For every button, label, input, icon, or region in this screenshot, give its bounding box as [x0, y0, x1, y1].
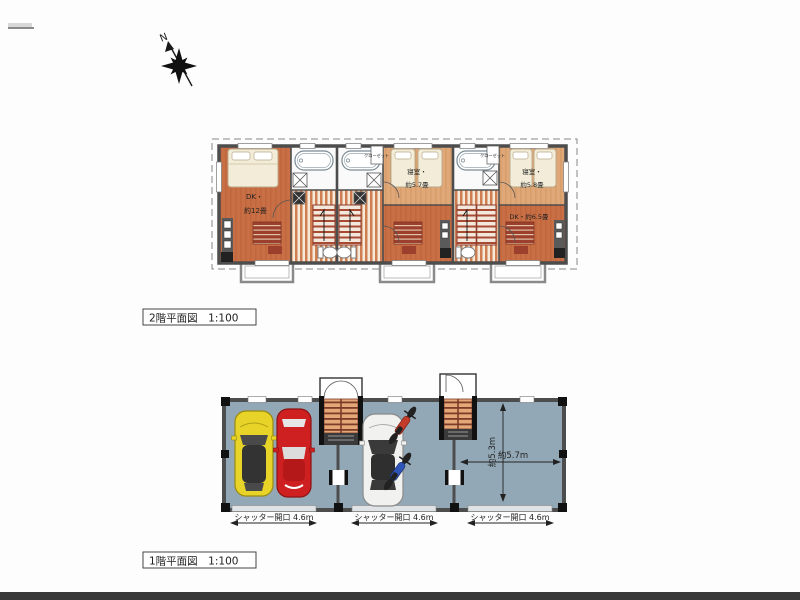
bathtub-core1	[295, 151, 333, 170]
unit3-bedroom-label: 寝室・	[522, 167, 542, 176]
stairs-core3	[457, 205, 496, 245]
floor-plan-document: N	[0, 0, 800, 600]
shutter-dim-1-label: シャッター開口 4.6m	[234, 513, 313, 522]
shutter-dim-3: シャッター開口 4.6m	[468, 513, 553, 523]
divider-door-1	[329, 470, 348, 485]
floor1-caption-text: 1階平面図 1:100	[149, 556, 238, 568]
toilet-core1	[318, 247, 337, 258]
toilet-core3	[456, 247, 475, 258]
unit1-dk-label: DK・	[246, 193, 263, 201]
shutter-dim-1: シャッター開口 4.6m	[231, 513, 316, 523]
balcony-2	[380, 263, 434, 282]
shutter-dim-2-label: シャッター開口 4.6m	[354, 513, 433, 522]
unit3-bedroom-size: 約5.8畳	[520, 180, 544, 189]
dim-width-label: 約5.7m	[498, 450, 528, 461]
floor2-plan: クローゼット クローゼット	[212, 139, 577, 282]
floor1-plan: 約5.3m 約5.7m シャッター開口 4.6m シャッター開口 4.6m シャ…	[221, 374, 567, 523]
balcony-1	[241, 263, 293, 282]
kitchen-unit2	[440, 220, 451, 258]
floor2-caption-text: 2階平面図 1:100	[149, 313, 238, 325]
unit1-dk-size: 約12畳	[244, 206, 267, 215]
unit3-dk-label: DK・約6.5畳	[509, 212, 549, 221]
floor1-caption: 1階平面図 1:100	[143, 552, 256, 568]
closet-label-unit2: クローゼット	[364, 152, 389, 159]
toilet-core2	[337, 247, 356, 258]
scan-edge-bottom	[0, 592, 800, 600]
bed-unit1	[228, 149, 278, 187]
stair-block-a	[319, 378, 363, 445]
kitchen-unit1	[221, 218, 233, 262]
balcony-3	[491, 263, 545, 282]
stair-block-b	[439, 374, 477, 440]
shutter-dim-2: シャッター開口 4.6m	[352, 513, 437, 523]
stairs-core1	[313, 205, 335, 245]
scan-artifact-top-left	[8, 23, 34, 29]
car-red	[274, 409, 315, 497]
closet-label-unit3: クローゼット	[480, 152, 505, 159]
divider-door-2	[445, 470, 464, 485]
unit2-bedroom-label: 寝室・	[407, 167, 427, 176]
compass: N	[158, 32, 197, 86]
car-yellow	[232, 411, 277, 496]
kitchen-unit3	[554, 220, 565, 258]
unit2-bedroom-size: 約5.7畳	[405, 180, 429, 189]
dim-depth-label: 約5.3m	[487, 437, 498, 467]
stairs-core2	[339, 205, 361, 245]
shutter-dim-3-label: シャッター開口 4.6m	[470, 513, 549, 522]
floor2-caption: 2階平面図 1:100	[143, 309, 256, 325]
